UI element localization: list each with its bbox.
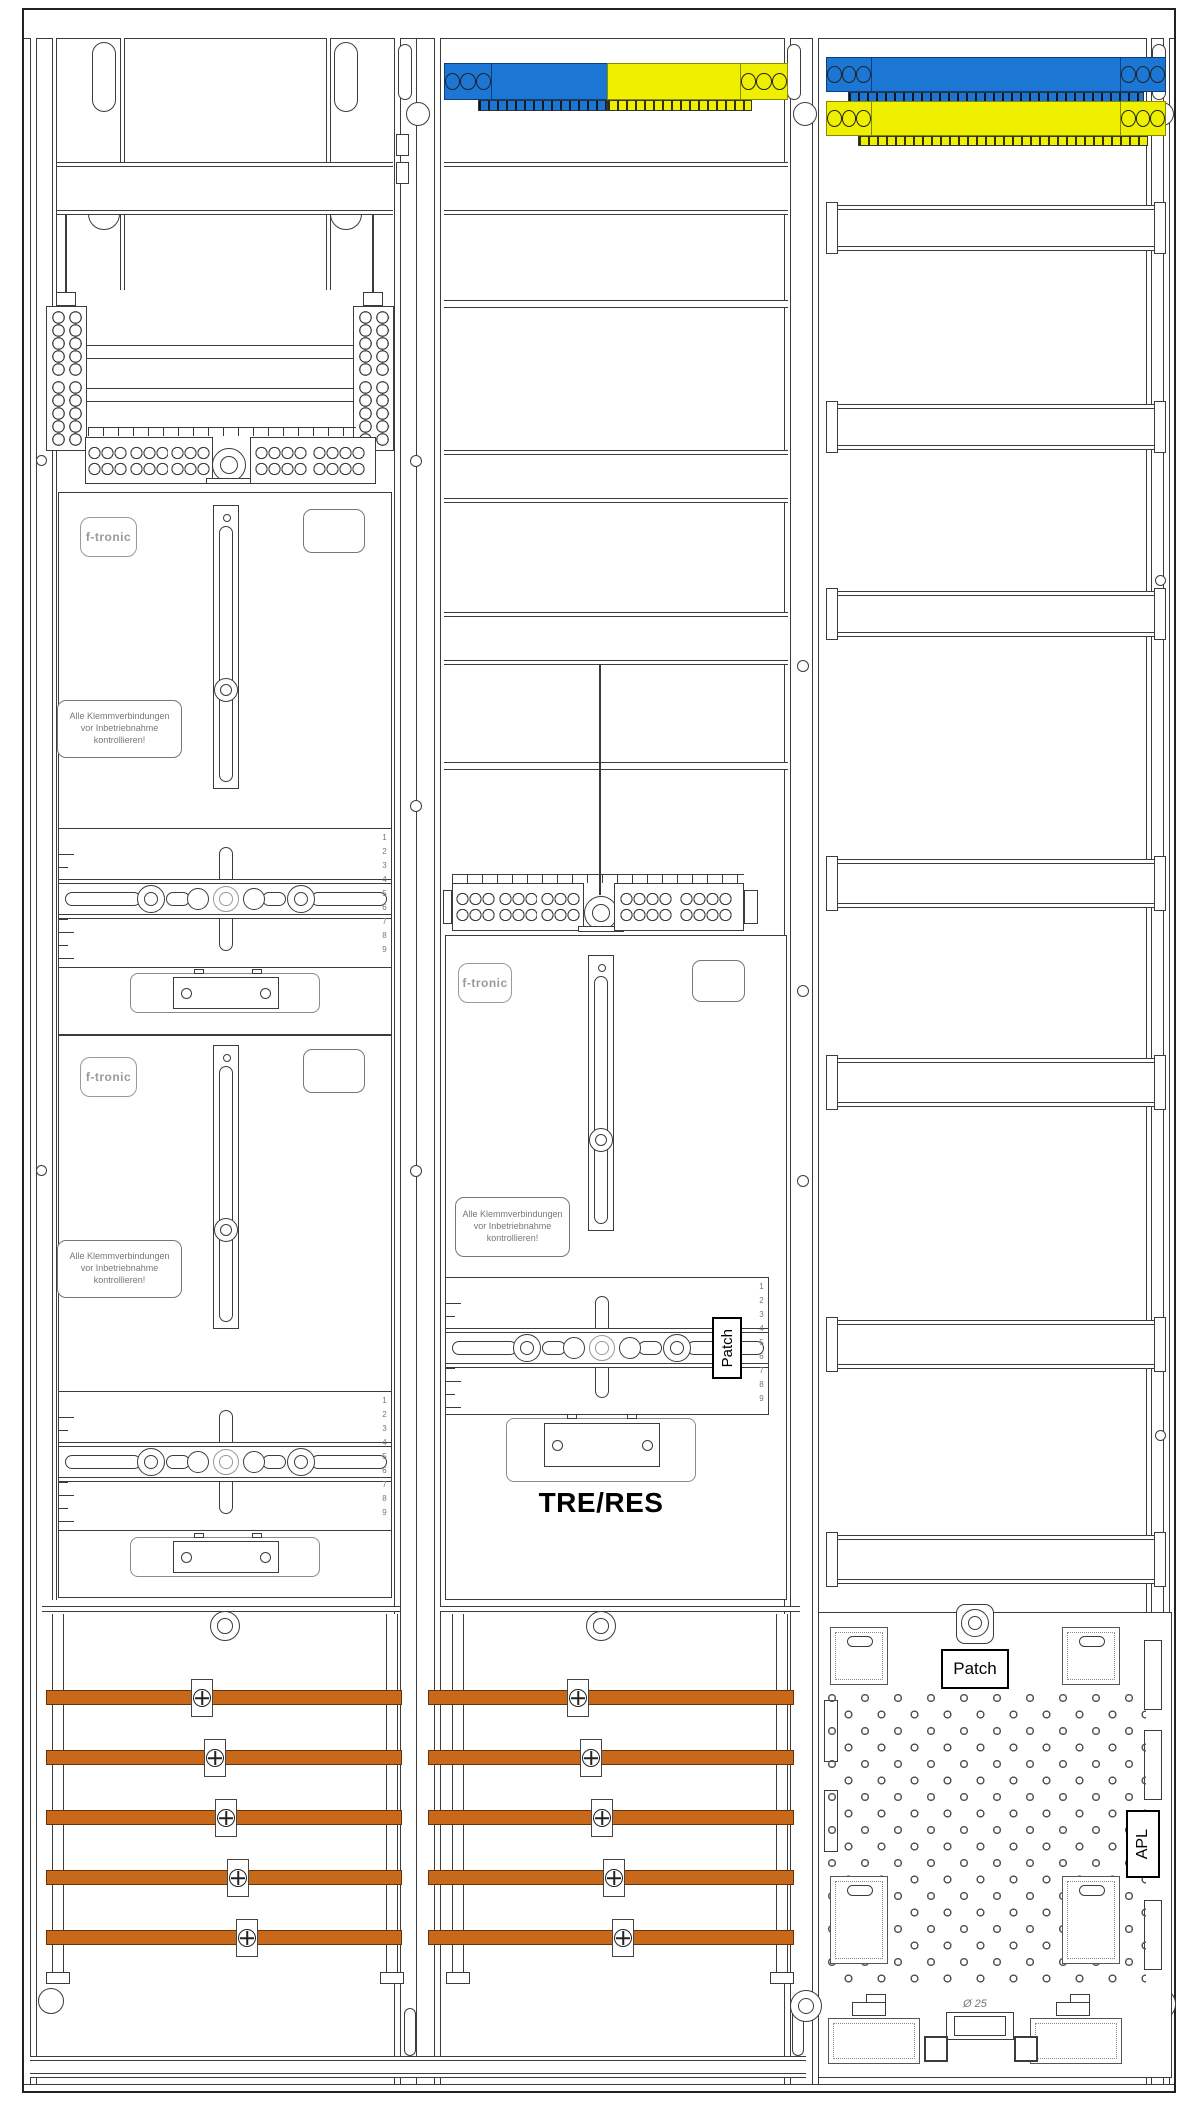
left-rail-screw-b <box>36 1165 47 1176</box>
cross-ruler-numbers: 123456789 <box>380 1396 389 1526</box>
col1p2-slider-screw <box>214 1218 238 1242</box>
clamp-screw-icon <box>206 1749 224 1767</box>
knockout-slot <box>847 1885 873 1896</box>
col1p1-blank-plate <box>303 509 365 553</box>
terminal-holes <box>50 381 84 446</box>
knockout-slot <box>1079 1885 1105 1896</box>
warning-line2: vor Inbetriebnahme <box>81 1263 159 1275</box>
cable-flag-step <box>866 1994 886 2003</box>
slider-hole <box>223 1054 231 1062</box>
slide-screw-right <box>287 1448 315 1476</box>
apl-rail-segment <box>1144 1730 1162 1800</box>
divider2-top-slot <box>787 44 801 100</box>
patch-label-text: Patch <box>719 1329 736 1367</box>
col1-cross-rail-a <box>57 345 393 359</box>
frame-top-line <box>24 38 1174 39</box>
col2-terminal-end-left <box>443 890 452 924</box>
tre-res-label: TRE/RES <box>501 1487 701 1521</box>
slide-slot <box>452 1341 517 1355</box>
busbar-m2 <box>428 1750 794 1765</box>
terminal-block-vertical-left <box>46 306 87 451</box>
bracket-tab <box>252 969 262 974</box>
rail-end-cap <box>826 856 838 911</box>
rail-end-cap <box>1154 1055 1166 1110</box>
col2-din-rail-3 <box>444 612 788 665</box>
col3-blue-bar <box>871 57 1121 92</box>
col1-cable-clamp <box>212 448 246 482</box>
terminal-block-row-right <box>250 437 376 484</box>
left-edge-rail <box>30 38 37 2084</box>
apl-corner-screw-left <box>790 1990 822 2022</box>
col3-din-rail-6 <box>836 1320 1156 1369</box>
col2-thin-rail-2 <box>444 762 788 770</box>
slide-screw-center <box>213 886 239 912</box>
cabinet-drawing: f-tronic Alle Klemmverbindungen vor Inbe… <box>0 0 1200 2101</box>
slide-screw-left <box>137 1448 165 1476</box>
col1-right-top-slot <box>334 42 358 112</box>
knockout-top-left <box>830 1627 888 1685</box>
busbar-l4 <box>46 1870 402 1885</box>
slide-slot <box>311 1455 387 1469</box>
knockout-slot <box>1079 1636 1105 1647</box>
slider-hole <box>223 514 231 522</box>
u-bracket <box>1014 2036 1038 2062</box>
terminal-holes <box>357 311 391 376</box>
warning-label: Alle Klemmverbindungen vor Inbetriebnahm… <box>57 700 182 758</box>
bracket-hole <box>552 1440 563 1451</box>
col1-left-feed-wire <box>65 215 67 292</box>
warning-label: Alle Klemmverbindungen vor Inbetriebnahm… <box>455 1197 570 1257</box>
terminal-block-row-left <box>85 437 213 484</box>
col1p2-meter-slider <box>213 1045 239 1329</box>
slide-hole <box>243 888 265 910</box>
col2-din-rail-1 <box>444 162 788 215</box>
col1-bus-rail-left <box>52 1614 64 1974</box>
slide-screw-right <box>663 1334 691 1362</box>
col2-mount-bracket <box>506 1418 696 1482</box>
warning-line3: kontrollieren! <box>487 1233 539 1245</box>
patch-label-col3: Patch <box>941 1649 1009 1689</box>
divider2-top-hole <box>793 102 817 126</box>
clamp-screw-icon <box>614 1929 632 1947</box>
warning-line1: Alle Klemmverbindungen <box>462 1209 562 1221</box>
slide-hole <box>563 1337 585 1359</box>
divider1-screw-c <box>410 1165 422 1177</box>
rail-end-cap <box>1154 1532 1166 1587</box>
cross-ruler-numbers: 123456789 <box>757 1282 766 1410</box>
slide-slot <box>638 1341 662 1355</box>
slider-slot <box>219 1066 233 1322</box>
rail-end-cap <box>1154 856 1166 911</box>
rail-foot <box>380 1972 404 1984</box>
busbar-clamp <box>191 1679 213 1717</box>
cross-ruler-numbers: 123456789 <box>380 833 389 963</box>
terminal-holes <box>313 445 365 477</box>
patch-label-col2: Patch <box>712 1317 742 1379</box>
right-rail-screw-b <box>1155 1430 1166 1441</box>
bracket-tab <box>194 1533 204 1538</box>
slide-hole <box>243 1451 265 1473</box>
col2-strip-teeth-yellow <box>607 100 752 111</box>
left-inner-rail <box>52 38 57 1600</box>
terminal-holes <box>541 891 580 923</box>
col1-right-block-cap <box>363 292 383 306</box>
slide-screw-left <box>513 1334 541 1362</box>
busbar-clamp <box>215 1799 237 1837</box>
ftronic-logo: f-tronic <box>80 517 137 557</box>
warning-line3: kontrollieren! <box>94 1275 146 1287</box>
col1-clamp-base <box>206 478 252 484</box>
divider1-rail-right <box>434 38 441 2084</box>
col3-yellow-end-right <box>1120 101 1166 136</box>
slider-hole <box>598 964 606 972</box>
busbar-l1 <box>46 1690 402 1705</box>
divider1-bottom-slot <box>404 2008 416 2056</box>
rail-end-cap <box>1154 202 1166 254</box>
busbar-clamp <box>612 1919 634 1957</box>
clamp-screw-icon <box>582 1749 600 1767</box>
terminal-holes <box>620 891 672 923</box>
cable-entry-inner <box>954 2016 1006 2036</box>
patch-label-text: Patch <box>953 1659 996 1679</box>
knockout-bottom-right <box>1062 1876 1120 1964</box>
clamp-screw-icon <box>593 1809 611 1827</box>
col2-strip-end-left <box>444 63 492 100</box>
col2-blank-plate <box>692 960 745 1002</box>
rail-end-cap <box>1154 1317 1166 1372</box>
col1p1-meter-cross: 123456789 <box>58 828 392 968</box>
col2-thin-rail-1 <box>444 300 788 308</box>
clamp-screw-icon <box>217 1809 235 1827</box>
divider2-screw-c <box>797 1175 809 1187</box>
cross-slide-bar <box>59 879 391 919</box>
bottom-frame-left <box>828 2018 920 2064</box>
col3-blue-end-right <box>1120 57 1166 92</box>
col2-terminal-row-right <box>614 883 744 931</box>
clamp-screw-icon <box>238 1929 256 1947</box>
apl-top-gland <box>961 1609 989 1637</box>
slide-slot <box>65 1455 141 1469</box>
bottom-left-hole <box>38 1988 64 2014</box>
busbar-clamp <box>603 1859 625 1897</box>
clamp-screw-icon <box>569 1689 587 1707</box>
warning-line1: Alle Klemmverbindungen <box>69 1251 169 1263</box>
apl-rail-segment <box>1144 1900 1162 1970</box>
slide-slot <box>262 1455 286 1469</box>
col1-bottom-clamp <box>210 1611 240 1641</box>
knockout-bottom-left <box>830 1876 888 1964</box>
cable-entry <box>946 2012 1014 2040</box>
slide-screw-center <box>213 1449 239 1475</box>
bottom-frame-inner <box>1035 2023 1117 2059</box>
col1p1-slider-screw <box>214 678 238 702</box>
terminal-holes <box>499 891 538 923</box>
slide-slot <box>65 892 141 906</box>
col3-yellow-end-left <box>826 101 872 136</box>
busbar-l5 <box>46 1930 402 1945</box>
bracket-tab <box>627 1414 637 1419</box>
col2-din-rail-2 <box>444 450 788 503</box>
cable-flag-step <box>1070 1994 1090 2003</box>
bottom-frame-right <box>1030 2018 1122 2064</box>
rail-end-cap <box>1154 588 1166 640</box>
col2-cable-clamp <box>584 896 618 930</box>
col3-blue-end-left <box>826 57 872 92</box>
col3-din-rail-4 <box>836 859 1156 908</box>
rail-end-cap <box>826 202 838 254</box>
knockout-slot <box>847 1636 873 1647</box>
bottom-cover-band <box>30 2056 806 2078</box>
divider1-clip-a <box>396 134 409 156</box>
warning-line3: kontrollieren! <box>94 735 146 747</box>
slide-slot <box>262 892 286 906</box>
terminal-holes <box>680 891 732 923</box>
terminal-holes <box>456 891 495 923</box>
rail-end-cap <box>826 1055 838 1110</box>
col2-strip-blue <box>491 63 608 100</box>
busbar-m1 <box>428 1690 794 1705</box>
col2-bottom-top-edge <box>440 1606 800 1612</box>
apl-label-box: APL <box>1126 1810 1160 1878</box>
busbar-clamp <box>580 1739 602 1777</box>
col1p2-meter-cross: 123456789 <box>58 1391 392 1531</box>
slide-screw-center <box>589 1335 615 1361</box>
warning-label: Alle Klemmverbindungen vor Inbetriebnahm… <box>57 1240 182 1298</box>
left-rail-screw-a <box>36 455 47 466</box>
brand-label: f-tronic <box>86 1070 131 1084</box>
left-top-slot <box>92 42 116 112</box>
busbar-clamp <box>236 1919 258 1957</box>
cable-flag <box>1056 2002 1090 2016</box>
terminal-holes <box>171 445 210 477</box>
rail-foot <box>46 1972 70 1984</box>
terminal-holes <box>255 445 307 477</box>
slide-hole <box>619 1337 641 1359</box>
col2-strip-end-right <box>740 63 788 100</box>
busbar-clamp <box>591 1799 613 1837</box>
bracket-tab <box>194 969 204 974</box>
col1-din-rail-1 <box>57 162 393 215</box>
busbar-clamp <box>227 1859 249 1897</box>
knockout-top-right <box>1062 1627 1120 1685</box>
ftronic-logo: f-tronic <box>458 963 512 1003</box>
bracket-hole <box>181 988 192 999</box>
rail-end-cap <box>1154 401 1166 453</box>
slide-screw-right <box>287 885 315 913</box>
col1-right-feed-wire <box>372 215 374 292</box>
apl-rail-segment <box>1144 1640 1162 1710</box>
rail-end-cap <box>826 1532 838 1587</box>
rail-end-cap <box>826 401 838 453</box>
col1p1-mount-bracket <box>130 973 320 1013</box>
col3-din-rail-2 <box>836 404 1156 450</box>
bottom-frame-inner <box>833 2023 915 2059</box>
col2-meter-slider <box>588 955 614 1231</box>
brand-label: f-tronic <box>86 530 131 544</box>
col1p1-meter-slider <box>213 505 239 789</box>
warning-line2: vor Inbetriebnahme <box>474 1221 552 1233</box>
bracket-tab <box>252 1533 262 1538</box>
busbar-clamp <box>204 1739 226 1777</box>
busbar-clamp <box>567 1679 589 1717</box>
divider1-screw-b <box>410 800 422 812</box>
bracket-tab <box>567 1414 577 1419</box>
rail-end-cap <box>826 588 838 640</box>
col2-slider-screw <box>589 1128 613 1152</box>
bracket-hole <box>260 988 271 999</box>
divider2-screw-a <box>797 660 809 672</box>
divider1-screw-a <box>410 455 422 467</box>
clamp-screw-icon <box>193 1689 211 1707</box>
col1-terminal-comb <box>88 427 356 436</box>
slider-slot <box>219 526 233 782</box>
col1-cross-rail-b <box>57 388 393 402</box>
terminal-block-vertical-right <box>353 306 394 451</box>
frame-bottom-line <box>24 2084 1174 2085</box>
ftronic-logo: f-tronic <box>80 1057 137 1097</box>
slide-hole <box>187 888 209 910</box>
bracket-hole <box>181 1552 192 1563</box>
col1p2-mount-bracket <box>130 1537 320 1577</box>
col2-terminal-end-right <box>744 890 758 924</box>
col2-bottom-clamp <box>586 1611 616 1641</box>
cable-flag <box>852 2002 886 2016</box>
col2-terminal-comb <box>452 874 744 883</box>
slider-slot <box>594 976 608 1224</box>
divider1-clip-b <box>396 162 409 184</box>
col3-yellow-bar <box>871 101 1121 136</box>
col3-din-rail-1 <box>836 205 1156 251</box>
col3-yellow-teeth <box>858 136 1148 146</box>
col1-bus-rail-right <box>386 1614 398 1974</box>
col1-left-block-cap <box>56 292 76 306</box>
brand-label: f-tronic <box>462 976 507 990</box>
col3-din-rail-5 <box>836 1058 1156 1107</box>
col3-din-rail-7 <box>836 1535 1156 1584</box>
col2-strip-teeth-blue <box>478 100 607 111</box>
divider1-top-hole <box>406 102 430 126</box>
divider2-screw-b <box>797 985 809 997</box>
divider1-top-slot <box>398 44 412 100</box>
busbar-m5 <box>428 1930 794 1945</box>
col1p2-blank-plate <box>303 1049 365 1093</box>
apl-label-text: APL <box>1134 1829 1152 1859</box>
slide-hole <box>187 1451 209 1473</box>
col3-din-rail-3 <box>836 591 1156 637</box>
right-rail-screw-a <box>1155 575 1166 586</box>
bracket-hole <box>642 1440 653 1451</box>
diameter-note: Ø 25 <box>945 1998 1005 2012</box>
rail-end-cap <box>826 1317 838 1372</box>
clamp-screw-icon <box>605 1869 623 1887</box>
slide-slot <box>311 892 387 906</box>
terminal-holes <box>50 311 84 376</box>
slide-screw-left <box>137 885 165 913</box>
terminal-holes <box>88 445 127 477</box>
cross-slide-bar <box>59 1442 391 1482</box>
divider1-center-line <box>416 38 417 2084</box>
col2-strip-yellow <box>607 63 741 100</box>
clamp-screw-icon <box>229 1869 247 1887</box>
u-bracket <box>924 2036 948 2062</box>
rail-foot <box>446 1972 470 1984</box>
rail-foot <box>770 1972 794 1984</box>
col2-terminal-row-left <box>452 883 584 931</box>
col2-bus-rail-left <box>452 1614 464 1974</box>
col2-feed-wire <box>599 665 601 895</box>
terminal-holes <box>130 445 169 477</box>
col2-bus-rail-right <box>776 1614 788 1974</box>
warning-line1: Alle Klemmverbindungen <box>69 711 169 723</box>
bracket-hole <box>260 1552 271 1563</box>
warning-line2: vor Inbetriebnahme <box>81 723 159 735</box>
